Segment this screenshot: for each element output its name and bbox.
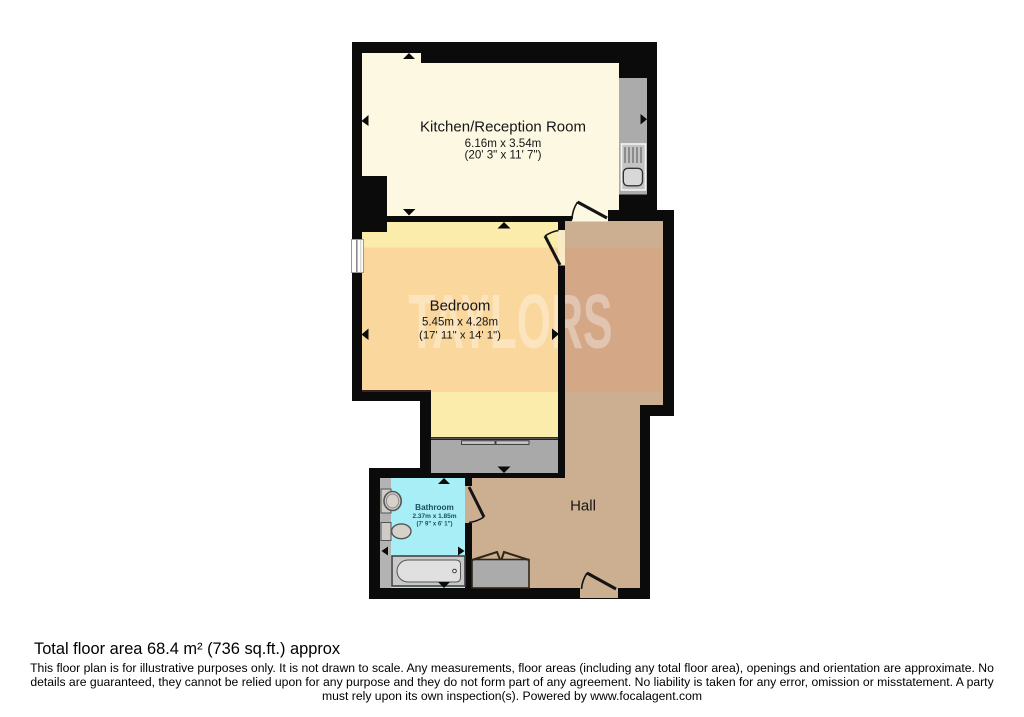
svg-text:details are guaranteed, they c: details are guaranteed, they cannot be r… — [30, 675, 994, 689]
svg-text:2.37m x 1.85m: 2.37m x 1.85m — [412, 513, 456, 520]
svg-text:Bathroom: Bathroom — [415, 503, 454, 512]
svg-text:Bedroom: Bedroom — [430, 298, 491, 315]
svg-text:(7' 9" x 6' 1"): (7' 9" x 6' 1") — [417, 521, 453, 527]
svg-text:This floor plan is for illustr: This floor plan is for illustrative purp… — [30, 661, 994, 675]
svg-text:5.45m x 4.28m: 5.45m x 4.28m — [422, 317, 498, 329]
svg-text:Hall: Hall — [570, 498, 596, 515]
svg-text:(17' 11" x 14' 1"): (17' 11" x 14' 1") — [419, 330, 501, 342]
svg-text:must rely upon its own inspect: must rely upon its own inspection(s). Po… — [322, 689, 702, 703]
svg-text:(20' 3" x 11' 7"): (20' 3" x 11' 7") — [465, 149, 542, 162]
svg-text:Total floor area 68.4 m² (736: Total floor area 68.4 m² (736 sq.ft.) ap… — [34, 640, 341, 658]
svg-text:Kitchen/Reception Room: Kitchen/Reception Room — [420, 119, 586, 136]
